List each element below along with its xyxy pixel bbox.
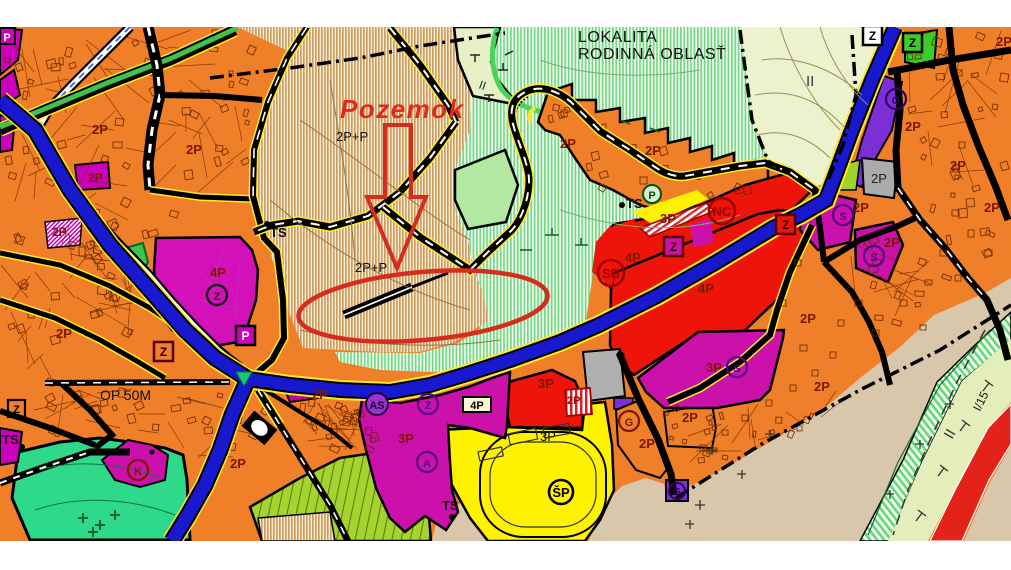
svg-text:Z: Z	[214, 291, 221, 303]
svg-text:Z: Z	[670, 240, 677, 254]
svg-text:P: P	[3, 32, 10, 44]
svg-text:P: P	[241, 329, 249, 343]
svg-text:LOKALITA: LOKALITA	[578, 29, 657, 46]
svg-text:2P: 2P	[645, 143, 661, 158]
svg-text:Z: Z	[160, 345, 167, 359]
svg-text:2P: 2P	[230, 456, 246, 471]
svg-text:2P: 2P	[88, 171, 103, 185]
svg-text:2P: 2P	[560, 136, 576, 151]
svg-text:Z: Z	[425, 400, 432, 412]
svg-text:G: G	[892, 95, 901, 107]
svg-text:AS: AS	[369, 400, 384, 412]
svg-text:A: A	[423, 458, 431, 470]
svg-text:2P: 2P	[800, 311, 816, 326]
svg-text:RODINNÁ OBLASŤ: RODINNÁ OBLASŤ	[578, 44, 726, 63]
svg-text:2P: 2P	[950, 158, 966, 173]
svg-text:2P: 2P	[853, 200, 869, 215]
svg-text:OP 50M: OP 50M	[100, 387, 151, 403]
svg-text:2P: 2P	[312, 387, 328, 402]
svg-text:G: G	[673, 487, 681, 498]
svg-text:K: K	[134, 466, 142, 478]
svg-text:2P: 2P	[905, 119, 921, 134]
svg-text:G: G	[625, 417, 634, 429]
svg-text:TS: TS	[442, 498, 459, 513]
svg-text:S: S	[839, 211, 846, 223]
svg-text:TS: TS	[626, 196, 643, 211]
svg-text:4P: 4P	[698, 281, 714, 296]
svg-text:II: II	[806, 73, 814, 90]
svg-text:Z: Z	[869, 29, 876, 43]
svg-text:4P: 4P	[470, 400, 483, 412]
svg-text:S: S	[733, 363, 740, 375]
svg-text:2P: 2P	[186, 142, 202, 157]
svg-text:NC: NC	[713, 204, 732, 219]
svg-text:2P: 2P	[92, 122, 108, 137]
svg-text:TS: TS	[2, 432, 19, 447]
svg-text:2P: 2P	[884, 235, 900, 250]
svg-text:Z: Z	[909, 36, 916, 50]
svg-text:3P: 3P	[538, 376, 554, 391]
svg-text:2P: 2P	[56, 326, 72, 341]
svg-text:Z: Z	[782, 218, 789, 232]
svg-text:2P: 2P	[639, 436, 655, 451]
svg-text:P: P	[648, 190, 655, 202]
svg-text:4P: 4P	[625, 250, 641, 265]
svg-text:ŠP: ŠP	[552, 485, 570, 500]
svg-text:TS: TS	[270, 225, 287, 240]
svg-text:Pozemok: Pozemok	[340, 94, 465, 124]
svg-text:2P: 2P	[52, 225, 67, 239]
svg-text:2P: 2P	[567, 395, 580, 407]
svg-text:3P: 3P	[398, 431, 414, 446]
svg-text:4P: 4P	[210, 265, 226, 280]
svg-text:2P: 2P	[871, 171, 887, 186]
svg-text:2P: 2P	[682, 410, 698, 425]
svg-text:SB: SB	[602, 266, 620, 281]
svg-text:2P: 2P	[814, 379, 830, 394]
svg-text:3P: 3P	[660, 211, 676, 226]
svg-text:2P: 2P	[984, 200, 1000, 215]
svg-text:2P: 2P	[996, 34, 1011, 49]
svg-text:S: S	[870, 252, 877, 264]
svg-text:2P+P: 2P+P	[355, 260, 387, 275]
svg-text:Z: Z	[13, 404, 20, 416]
svg-text:3P: 3P	[540, 429, 556, 444]
svg-text:3P: 3P	[706, 360, 722, 375]
svg-text:2P+P: 2P+P	[336, 129, 368, 144]
